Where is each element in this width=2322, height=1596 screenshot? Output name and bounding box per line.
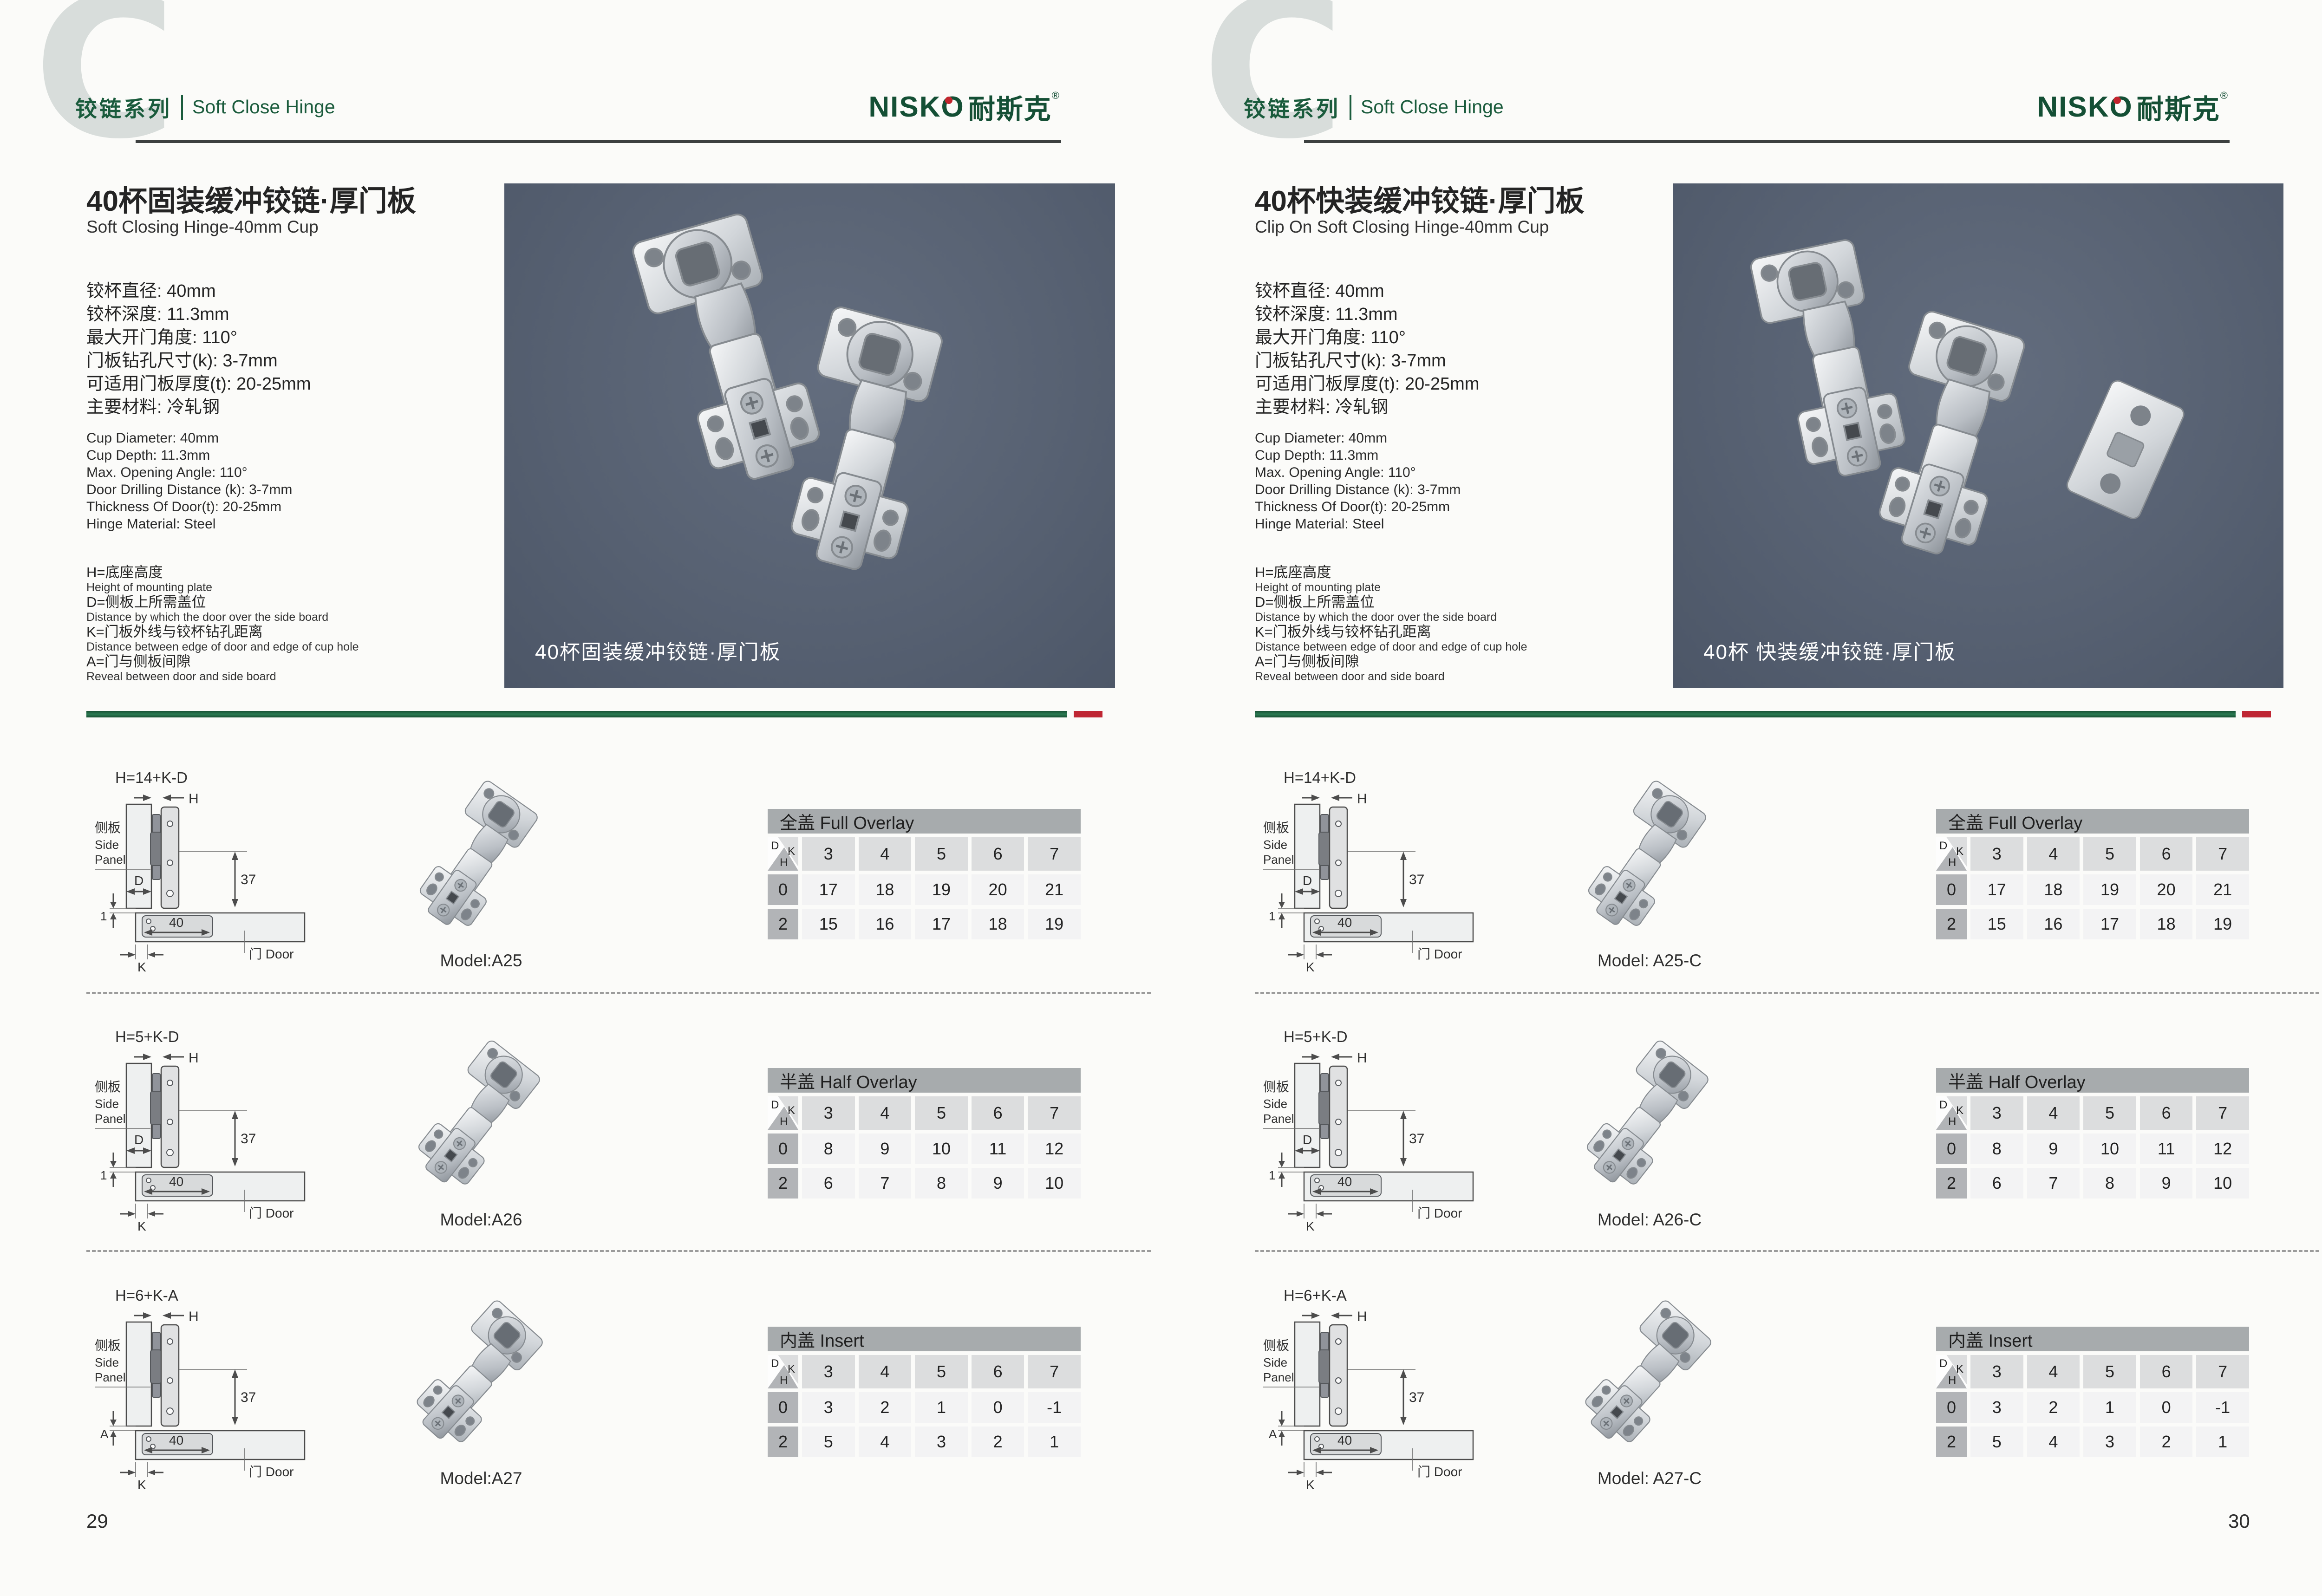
legend-en: Height of mounting plate [86,581,359,594]
legend-item: D=侧板上所需盖位 Distance by which the door ove… [86,594,359,624]
svg-text:Side: Side [95,1097,119,1111]
value-cell: 12 [1028,1133,1081,1164]
value-cell: 1 [2196,1427,2249,1457]
svg-text:Panel: Panel [95,1112,126,1126]
logo-text-latin: NISKO [2037,91,2133,124]
value-cell: 21 [1028,874,1081,905]
spec-list-cn: 铰杯直径: 40mm铰杯深度: 11.3mm最大开门角度: 110°门板钻孔尺寸… [86,280,311,419]
svg-text:A: A [1269,1427,1277,1441]
product-row: H=5+K-D H 侧板 Side Panel 37 D [86,1021,1115,1253]
value-cell: 8 [802,1133,855,1164]
legend-en: Reveal between door and side board [86,670,359,683]
k-value-cell: 4 [859,837,912,871]
k-header-row: 34567 [802,1355,1081,1388]
k-value-cell: 3 [802,837,855,871]
photo-caption: 40杯 快装缓冲铰链·厚门板 [1703,635,1956,665]
table-title: 全盖 Full Overlay [1936,809,2249,834]
k-value-cell: 3 [802,1096,855,1130]
value-cell: 17 [2083,909,2136,939]
value-cell: 21 [2196,874,2249,905]
svg-text:H: H [1357,1050,1367,1066]
svg-text:37: 37 [1409,1390,1424,1405]
corner-h: H [780,856,788,869]
svg-text:Side: Side [1263,1355,1287,1369]
k-value-cell: 5 [915,837,968,871]
h-value-cell: 2 [1936,909,1967,939]
spec-table: 内盖 Insert D K H 34567 0 3210-1 2 54321 [1936,1327,2249,1457]
svg-text:Panel: Panel [1263,853,1294,866]
diagram-formula: H=14+K-D [115,769,188,786]
spec-list-en: Cup Diameter: 40mmCup Depth: 11.3mmMax. … [1255,430,1461,533]
k-header-row: 34567 [802,1096,1081,1130]
value-cell: 7 [2027,1168,2080,1199]
h-value-cell: 2 [1936,1168,1967,1199]
spec-list-cn: 铰杯直径: 40mm铰杯深度: 11.3mm最大开门角度: 110°门板钻孔尺寸… [1255,280,1479,419]
k-value-cell: 6 [972,1096,1024,1130]
legend-cn: D=侧板上所需盖位 [86,594,359,611]
value-cell: 5 [802,1427,855,1457]
data-row: 3210-1 [1970,1392,2249,1423]
h-value-cell: 0 [1936,1133,1967,1164]
value-cell: 16 [859,909,912,939]
h-value-cell: 2 [768,909,798,939]
registered-mark: ® [2220,90,2228,102]
svg-text:K: K [1306,960,1315,974]
svg-text:37: 37 [1409,1131,1424,1147]
spec-line-en: Cup Diameter: 40mm [86,430,292,447]
spec-line-cn: 铰杯深度: 11.3mm [86,303,311,326]
k-value-cell: 6 [972,1355,1024,1388]
legend-item: K=门板外线与铰杯钻孔距离 Distance between edge of d… [86,624,359,653]
data-row: 1718192021 [802,874,1081,905]
k-value-cell: 7 [1028,1355,1081,1388]
page-number: 30 [2228,1510,2250,1532]
spec-list-en: Cup Diameter: 40mmCup Depth: 11.3mmMax. … [86,430,292,533]
spec-table: 全盖 Full Overlay D K H 34567 0 1718192021… [1936,809,2249,939]
svg-text:Side: Side [95,1355,119,1369]
data-row: 1516171819 [1970,909,2249,939]
diagram-panel-en: Panel [95,853,126,866]
header-rule [136,140,1061,143]
data-row: 54321 [1970,1427,2249,1457]
value-cell: 19 [915,874,968,905]
series-header: 铰链系列 Soft Close Hinge [1244,91,1504,123]
row-product-image [365,770,597,947]
svg-text:1: 1 [1269,909,1275,923]
diagram-h-label: H [189,791,199,807]
series-title-cn: 铰链系列 [75,91,172,123]
series-title-cn: 铰链系列 [1244,91,1340,123]
dimension-legend: H=底座高度 Height of mounting plate D=侧板上所需盖… [86,564,359,683]
data-row: 54321 [802,1427,1081,1457]
row-product-image [365,1288,597,1465]
value-cell: 18 [859,874,912,905]
svg-text:H: H [189,1050,199,1066]
svg-text:40: 40 [1337,915,1352,930]
value-cell: 3 [915,1427,968,1457]
k-value-cell: 3 [1970,837,2023,871]
value-cell: 17 [915,909,968,939]
value-cell: 20 [972,874,1024,905]
value-cell: 3 [2083,1427,2136,1457]
k-value-cell: 4 [2027,1355,2080,1388]
h-value-cell: 2 [768,1427,798,1457]
product-title-cn: 40杯快装缓冲铰链·厚门板 [1255,177,1585,219]
spec-line-cn: 铰杯直径: 40mm [1255,280,1479,303]
installation-diagram: H=5+K-D H 侧板 Side Panel 37 D [91,1026,351,1235]
k-value-cell: 7 [1028,1096,1081,1130]
legend-en: Distance between edge of door and edge o… [1255,640,1527,653]
legend-item: A=门与侧板间隙 Reveal between door and side bo… [86,653,359,683]
value-cell: 19 [2196,909,2249,939]
series-divider [1350,95,1351,120]
value-cell: 20 [2140,874,2193,905]
svg-text:H: H [1357,791,1367,807]
value-cell: 9 [972,1168,1024,1199]
model-label: Model: A27-C [1529,1469,1770,1488]
corner-k: K [788,845,795,858]
value-cell: 0 [972,1392,1024,1423]
spec-line-cn: 铰杯直径: 40mm [86,280,311,303]
diagram-panel-cn: 侧板 [95,821,121,835]
table-corner-cell: D K H [1936,837,1967,871]
dimension-legend: H=底座高度 Height of mounting plate D=侧板上所需盖… [1255,564,1527,683]
legend-en: Distance by which the door over the side… [1255,611,1527,624]
table-title: 半盖 Half Overlay [1936,1068,2249,1093]
h-value-cell: 0 [768,874,798,905]
logo-text-latin: NISKO [868,91,964,124]
legend-item: H=底座高度 Height of mounting plate [86,564,359,594]
spec-table: 半盖 Half Overlay D K H 34567 0 89101112 2… [1936,1068,2249,1199]
k-value-cell: 5 [2083,1096,2136,1130]
value-cell: 18 [972,909,1024,939]
diagram-door-label: 门 Door [249,947,294,961]
spec-table: 内盖 Insert D K H 34567 0 3210-1 2 54321 [768,1327,1081,1457]
logo-text-cn: 耐斯克 [968,87,1052,126]
value-cell: 18 [2027,874,2080,905]
spec-line-cn: 门板钻孔尺寸(k): 3-7mm [1255,349,1479,372]
diagram-cup-label: 40 [169,915,183,930]
legend-cn: H=底座高度 [1255,564,1527,581]
svg-text:1: 1 [100,1168,107,1182]
svg-text:K: K [1306,1478,1315,1492]
spec-line-en: Cup Depth: 11.3mm [1255,447,1461,464]
svg-text:37: 37 [1409,872,1424,887]
legend-en: Reveal between door and side board [1255,670,1527,683]
data-row: 678910 [802,1168,1081,1199]
value-cell: 6 [802,1168,855,1199]
legend-cn: A=门与侧板间隙 [1255,653,1527,670]
section-divider-red [2242,711,2271,717]
svg-text:D: D [1303,1133,1312,1147]
spec-line-cn: 最大开门角度: 110° [86,326,311,349]
series-divider [181,95,183,120]
row-separator [1255,1250,2319,1252]
section-divider-green [86,711,1067,717]
value-cell: -1 [1028,1392,1081,1423]
photo-caption: 40杯固装缓冲铰链·厚门板 [535,635,781,665]
diagram-formula: H=6+K-A [1284,1287,1347,1304]
product-row: H=14+K-D H 侧板 Side Panel 37 D [86,762,1115,994]
diagram-dim-label: D [134,873,143,888]
section-divider-green [1255,711,2236,717]
spec-line-en: Max. Opening Angle: 110° [1255,464,1461,481]
row-product-image [365,1029,597,1206]
value-cell: 2 [2027,1392,2080,1423]
logo-red-dot-icon [945,97,952,104]
svg-text:Panel: Panel [1263,1112,1294,1126]
row-separator [86,992,1151,994]
product-title-cn: 40杯固装缓冲铰链·厚门板 [86,177,416,219]
svg-text:37: 37 [241,1390,256,1405]
svg-text:门 Door: 门 Door [249,1206,294,1220]
svg-text:40: 40 [169,1433,183,1447]
legend-item: H=底座高度 Height of mounting plate [1255,564,1527,594]
k-header-row: 34567 [1970,1096,2249,1130]
installation-diagram: H=5+K-D H 侧板 Side Panel 37 D [1259,1026,1520,1235]
k-value-cell: 5 [2083,837,2136,871]
spec-line-cn: 主要材料: 冷轧钢 [1255,396,1479,419]
svg-text:侧板: 侧板 [1263,821,1289,835]
diagram-k-label: K [137,960,146,974]
catalog-spread: C 铰链系列 Soft Close Hinge NISKO耐斯克® 40杯固装缓… [0,0,2322,1596]
value-cell: 4 [859,1427,912,1457]
spec-line-en: Cup Depth: 11.3mm [86,447,292,464]
logo-red-dot-icon [2113,97,2121,104]
diagram-formula: H=14+K-D [1284,769,1356,786]
installation-diagram: H=14+K-D H 侧板 Side Panel 37 D [1259,767,1520,976]
legend-cn: A=门与侧板间隙 [86,653,359,670]
spec-line-en: Thickness Of Door(t): 20-25mm [1255,498,1461,515]
k-value-cell: 5 [2083,1355,2136,1388]
k-value-cell: 6 [2140,1096,2193,1130]
svg-text:侧板: 侧板 [1263,1080,1289,1094]
k-value-cell: 7 [2196,1096,2249,1130]
value-cell: 9 [859,1133,912,1164]
value-cell: 5 [1970,1427,2023,1457]
k-value-cell: 4 [859,1355,912,1388]
legend-cn: H=底座高度 [86,564,359,581]
svg-text:H: H [189,1309,199,1324]
svg-text:A: A [100,1427,109,1441]
k-value-cell: 6 [2140,837,2193,871]
value-cell: 10 [915,1133,968,1164]
value-cell: 11 [2140,1133,2193,1164]
table-corner-cell: D K H [1936,1096,1967,1130]
svg-text:H: H [1357,1309,1367,1324]
value-cell: 16 [2027,909,2080,939]
svg-text:40: 40 [1337,1433,1352,1447]
installation-diagram: H=14+K-D H 侧板 Side Panel 37 D [91,767,351,976]
k-header-row: 34567 [1970,1355,2249,1388]
diagram-panel-en: Side [95,838,119,852]
k-value-cell: 4 [859,1096,912,1130]
svg-text:门 Door: 门 Door [249,1465,294,1479]
row-product-image [1533,1029,1766,1206]
product-row: H=5+K-D H 侧板 Side Panel 37 D [1255,1021,2283,1253]
svg-text:1: 1 [1269,1168,1275,1182]
value-cell: 19 [1028,909,1081,939]
installation-diagram: H=6+K-A H 侧板 Side Panel 37 [91,1285,351,1494]
value-cell: 9 [2140,1168,2193,1199]
h-value-cell: 0 [1936,1392,1967,1423]
series-header: 铰链系列 Soft Close Hinge [75,91,335,123]
table-title: 内盖 Insert [1936,1327,2249,1351]
data-row: 1516171819 [802,909,1081,939]
model-label: Model:A27 [360,1469,602,1488]
value-cell: 19 [2083,874,2136,905]
svg-text:40: 40 [169,1174,183,1189]
svg-text:40: 40 [1337,1174,1352,1189]
model-label: Model:A26 [360,1210,602,1230]
value-cell: 12 [2196,1133,2249,1164]
value-cell: 6 [1970,1168,2023,1199]
spec-table: 半盖 Half Overlay D K H 34567 0 89101112 2… [768,1068,1081,1199]
corner-d: D [771,840,779,853]
svg-text:K: K [1306,1219,1315,1233]
svg-text:D: D [134,1133,143,1147]
spec-line-cn: 可适用门板厚度(t): 20-25mm [1255,372,1479,396]
spec-line-en: Hinge Material: Steel [86,515,292,533]
row-separator [1255,992,2319,994]
value-cell: 17 [1970,874,2023,905]
product-row: H=6+K-A H 侧板 Side Panel 37 [86,1279,1115,1511]
hinge-photo-illustration [504,183,1115,688]
product-photo: 40杯 快装缓冲铰链·厚门板 [1673,183,2283,688]
svg-text:门 Door: 门 Door [1417,947,1462,961]
spec-table: 全盖 Full Overlay D K H 34567 0 1718192021… [768,809,1081,939]
svg-text:Panel: Panel [1263,1370,1294,1384]
spec-line-cn: 主要材料: 冷轧钢 [86,396,311,419]
spec-line-en: Door Drilling Distance (k): 3-7mm [1255,481,1461,498]
section-divider-red [1074,711,1102,717]
data-row: 1718192021 [1970,874,2249,905]
value-cell: 3 [802,1392,855,1423]
spec-line-cn: 铰杯深度: 11.3mm [1255,303,1479,326]
value-cell: 17 [802,874,855,905]
svg-text:Side: Side [1263,1097,1287,1111]
k-value-cell: 6 [2140,1355,2193,1388]
nisko-logo: NISKO耐斯克® [2037,87,2228,126]
spec-line-en: Cup Diameter: 40mm [1255,430,1461,447]
page-number: 29 [86,1510,108,1532]
k-value-cell: 4 [2027,1096,2080,1130]
value-cell: 4 [2027,1427,2080,1457]
spec-line-en: Door Drilling Distance (k): 3-7mm [86,481,292,498]
value-cell: 18 [2140,909,2193,939]
spec-line-en: Hinge Material: Steel [1255,515,1461,533]
diagram-formula: H=5+K-D [115,1028,179,1045]
k-value-cell: 3 [802,1355,855,1388]
h-value-cell: 2 [1936,1427,1967,1457]
h-value-cell: 0 [768,1133,798,1164]
installation-diagram: H=6+K-A H 侧板 Side Panel 37 [1259,1285,1520,1494]
spec-line-cn: 最大开门角度: 110° [1255,326,1479,349]
logo-text-cn: 耐斯克 [2137,87,2220,126]
data-row: 89101112 [802,1133,1081,1164]
k-value-cell: 4 [2027,837,2080,871]
k-value-cell: 7 [1028,837,1081,871]
product-title-en: Clip On Soft Closing Hinge-40mm Cup [1255,217,1549,237]
svg-text:门 Door: 门 Door [1417,1465,1462,1479]
spec-line-cn: 门板钻孔尺寸(k): 3-7mm [86,349,311,372]
value-cell: 15 [802,909,855,939]
value-cell: 8 [1970,1133,2023,1164]
table-corner-cell: D K H [768,1096,798,1130]
nisko-logo: NISKO耐斯克® [868,87,1059,126]
k-value-cell: 5 [915,1355,968,1388]
k-value-cell: 3 [1970,1096,2023,1130]
catalog-page-right: C 铰链系列 Soft Close Hinge NISKO耐斯克® 40杯快装缓… [1168,0,2322,1596]
value-cell: 8 [2083,1168,2136,1199]
table-title: 半盖 Half Overlay [768,1068,1081,1093]
series-title-en: Soft Close Hinge [192,96,335,118]
value-cell: 2 [859,1392,912,1423]
k-header-row: 34567 [802,837,1081,871]
value-cell: 1 [915,1392,968,1423]
product-title-en: Soft Closing Hinge-40mm Cup [86,217,319,237]
diagram-depth-label: 37 [241,872,256,887]
registered-mark: ® [1052,90,1059,102]
data-row: 678910 [1970,1168,2249,1199]
legend-en: Distance between edge of door and edge o… [86,640,359,653]
row-separator [86,1250,1151,1252]
svg-text:侧板: 侧板 [95,1080,121,1094]
k-value-cell: 3 [1970,1355,2023,1388]
catalog-page-left: C 铰链系列 Soft Close Hinge NISKO耐斯克® 40杯固装缓… [0,0,1168,1596]
svg-text:37: 37 [241,1131,256,1147]
k-value-cell: 6 [972,837,1024,871]
k-value-cell: 7 [2196,837,2249,871]
h-value-cell: 0 [768,1392,798,1423]
legend-cn: K=门板外线与铰杯钻孔距离 [1255,624,1527,640]
value-cell: 2 [972,1427,1024,1457]
svg-text:K: K [137,1478,146,1492]
series-title-en: Soft Close Hinge [1361,96,1504,118]
row-product-image [1533,770,1766,947]
legend-cn: K=门板外线与铰杯钻孔距离 [86,624,359,640]
value-cell: 0 [2140,1392,2193,1423]
value-cell: 9 [2027,1133,2080,1164]
legend-item: K=门板外线与铰杯钻孔距离 Distance between edge of d… [1255,624,1527,653]
svg-text:门 Door: 门 Door [1417,1206,1462,1220]
value-cell: 15 [1970,909,2023,939]
h-value-cell: 2 [768,1168,798,1199]
diagram-gap-label: 1 [100,909,107,923]
diagram-formula: H=5+K-D [1284,1028,1348,1045]
svg-text:侧板: 侧板 [95,1338,121,1353]
value-cell: 2 [2140,1427,2193,1457]
svg-text:D: D [1303,873,1312,888]
legend-en: Distance by which the door over the side… [86,611,359,624]
value-cell: 10 [1028,1168,1081,1199]
legend-item: A=门与侧板间隙 Reveal between door and side bo… [1255,653,1527,683]
value-cell: 1 [2083,1392,2136,1423]
product-photo: 40杯固装缓冲铰链·厚门板 [504,183,1115,688]
k-header-row: 34567 [1970,837,2249,871]
legend-cn: D=侧板上所需盖位 [1255,594,1527,611]
product-row: H=6+K-A H 侧板 Side Panel 37 [1255,1279,2283,1511]
table-title: 内盖 Insert [768,1327,1081,1351]
value-cell: 3 [1970,1392,2023,1423]
data-row: 3210-1 [802,1392,1081,1423]
k-value-cell: 7 [2196,1355,2249,1388]
h-value-cell: 0 [1936,874,1967,905]
value-cell: 10 [2196,1168,2249,1199]
table-title: 全盖 Full Overlay [768,809,1081,834]
value-cell: 7 [859,1168,912,1199]
value-cell: 10 [2083,1133,2136,1164]
